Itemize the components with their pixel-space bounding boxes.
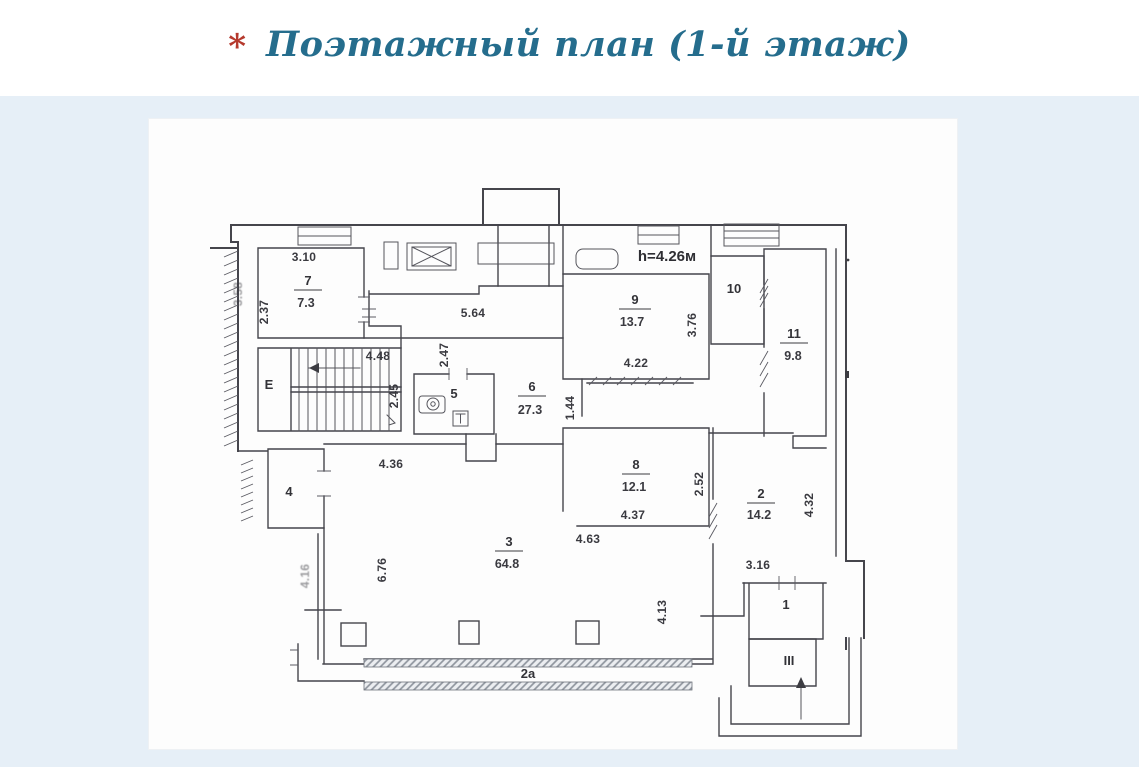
dim-room8-bottom: 4.37 xyxy=(621,508,646,522)
dim-stair-top: 4.48 xyxy=(366,349,391,363)
slide: { "page": { "background": "#ffffff", "ba… xyxy=(0,0,1139,767)
room6-area: 27.3 xyxy=(518,403,542,417)
dim-room1-top: 3.16 xyxy=(746,558,771,572)
room1-number: 1 xyxy=(782,597,789,612)
dim-room7-left: 2.37 xyxy=(257,300,271,325)
entrance-steps-symbol xyxy=(478,243,554,264)
dim-room3-left-lower: 4.16 xyxy=(298,564,312,589)
dim-room8-lower-right: 4.13 xyxy=(655,600,669,625)
columns xyxy=(341,621,599,646)
wc-fixtures xyxy=(419,396,468,426)
dim-room8-below: 4.63 xyxy=(576,532,601,546)
door-leaf-symbols xyxy=(384,242,618,269)
dim-corridor: 1.44 xyxy=(563,396,577,421)
title-asterisk-bullet: * xyxy=(228,30,246,64)
dim-room7-top: 3.10 xyxy=(292,250,317,264)
room6-number: 6 xyxy=(528,379,535,394)
shaft-crossed-box-symbol xyxy=(407,243,456,270)
dim-room2-right: 4.32 xyxy=(802,493,816,518)
terrace-label: 2а xyxy=(521,666,536,681)
room2-area: 14.2 xyxy=(747,508,771,522)
floor-plan-svg: h=4.26м 7 7.3 6 27.3 9 13.7 10 11 9.8 5 … xyxy=(149,119,957,749)
entrance-label: III xyxy=(784,653,795,668)
room4-number: 4 xyxy=(285,484,293,499)
dim-hall-left: 2.47 xyxy=(437,343,451,368)
room2-number: 2 xyxy=(757,486,764,501)
room10-number: 10 xyxy=(727,281,741,296)
floor-plan-scan-panel: h=4.26м 7 7.3 6 27.3 9 13.7 10 11 9.8 5 … xyxy=(148,118,958,750)
room11-area: 9.8 xyxy=(784,349,801,363)
room7-number: 7 xyxy=(304,273,311,288)
room3-area: 64.8 xyxy=(495,557,519,571)
dim-room9-right: 3.76 xyxy=(685,313,699,338)
room5-number: 5 xyxy=(450,386,457,401)
dim-hall-top: 5.64 xyxy=(461,306,486,320)
dim-room8-right: 2.52 xyxy=(692,472,706,497)
dim-stair-right: 2.45 xyxy=(387,384,401,409)
door-ticks xyxy=(290,279,795,665)
room11-number: 11 xyxy=(787,326,801,341)
room8-number: 8 xyxy=(632,457,639,472)
room3-number: 3 xyxy=(505,534,512,549)
stairwell-label: Е xyxy=(265,377,274,392)
title-row: * Поэтажный план (1-й этаж) xyxy=(0,24,1139,65)
room9-number: 9 xyxy=(631,292,638,307)
page-title: Поэтажный план (1-й этаж) xyxy=(266,24,911,65)
dim-left-edge: 3.58 xyxy=(231,282,245,307)
room9-area: 13.7 xyxy=(620,315,644,329)
entrance-arrow xyxy=(796,677,806,719)
stair-direction-arrow xyxy=(309,363,319,373)
dim-room3-left: 6.76 xyxy=(375,558,389,583)
ceiling-height-note: h=4.26м xyxy=(638,248,696,265)
dim-room3-top: 4.36 xyxy=(379,457,404,471)
room8-area: 12.1 xyxy=(622,480,646,494)
dim-room9-bottom: 4.22 xyxy=(624,356,649,370)
room7-area: 7.3 xyxy=(297,296,314,310)
